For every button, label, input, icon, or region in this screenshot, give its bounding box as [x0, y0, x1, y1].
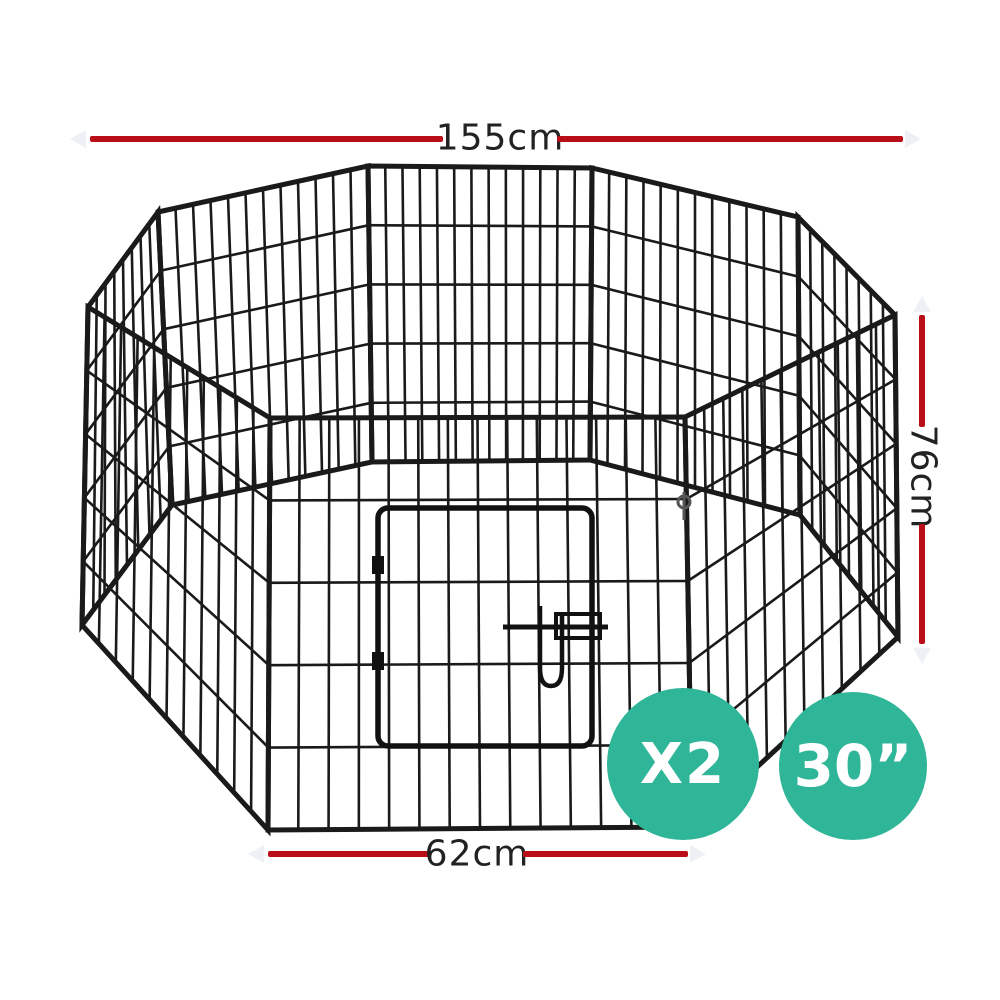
dimension-arrow-icon: [905, 130, 921, 148]
latch-hook-icon: [540, 606, 562, 686]
dimension-line-right: [919, 524, 925, 644]
dimension-line-right: [919, 315, 925, 427]
dimension-label-bottom: 62cm: [425, 834, 530, 875]
wire-panels: [82, 166, 898, 830]
dimension-label-right: 76cm: [903, 425, 944, 530]
dimension-arrow-icon: [248, 845, 264, 863]
dimension-label-top: 155cm: [436, 118, 565, 159]
product-image: 155cm 76cm 62cm X2 30”: [0, 0, 1000, 1000]
dimension-line-bottom: [268, 851, 431, 857]
dimension-arrow-icon: [70, 130, 86, 148]
dimension-line-bottom: [523, 851, 688, 857]
door-hinge-icon: [372, 652, 384, 670]
dimension-line-top: [90, 136, 443, 142]
dimension-arrow-icon: [913, 296, 931, 312]
quantity-badge: X2: [607, 688, 759, 840]
door-hinge-icon: [372, 556, 384, 574]
quantity-badge-label: X2: [640, 732, 726, 797]
dimension-arrow-icon: [913, 648, 931, 664]
dimension-arrow-icon: [690, 845, 706, 863]
size-badge-label: 30”: [794, 732, 913, 800]
dimension-line-top: [557, 136, 903, 142]
size-badge: 30”: [779, 692, 927, 840]
